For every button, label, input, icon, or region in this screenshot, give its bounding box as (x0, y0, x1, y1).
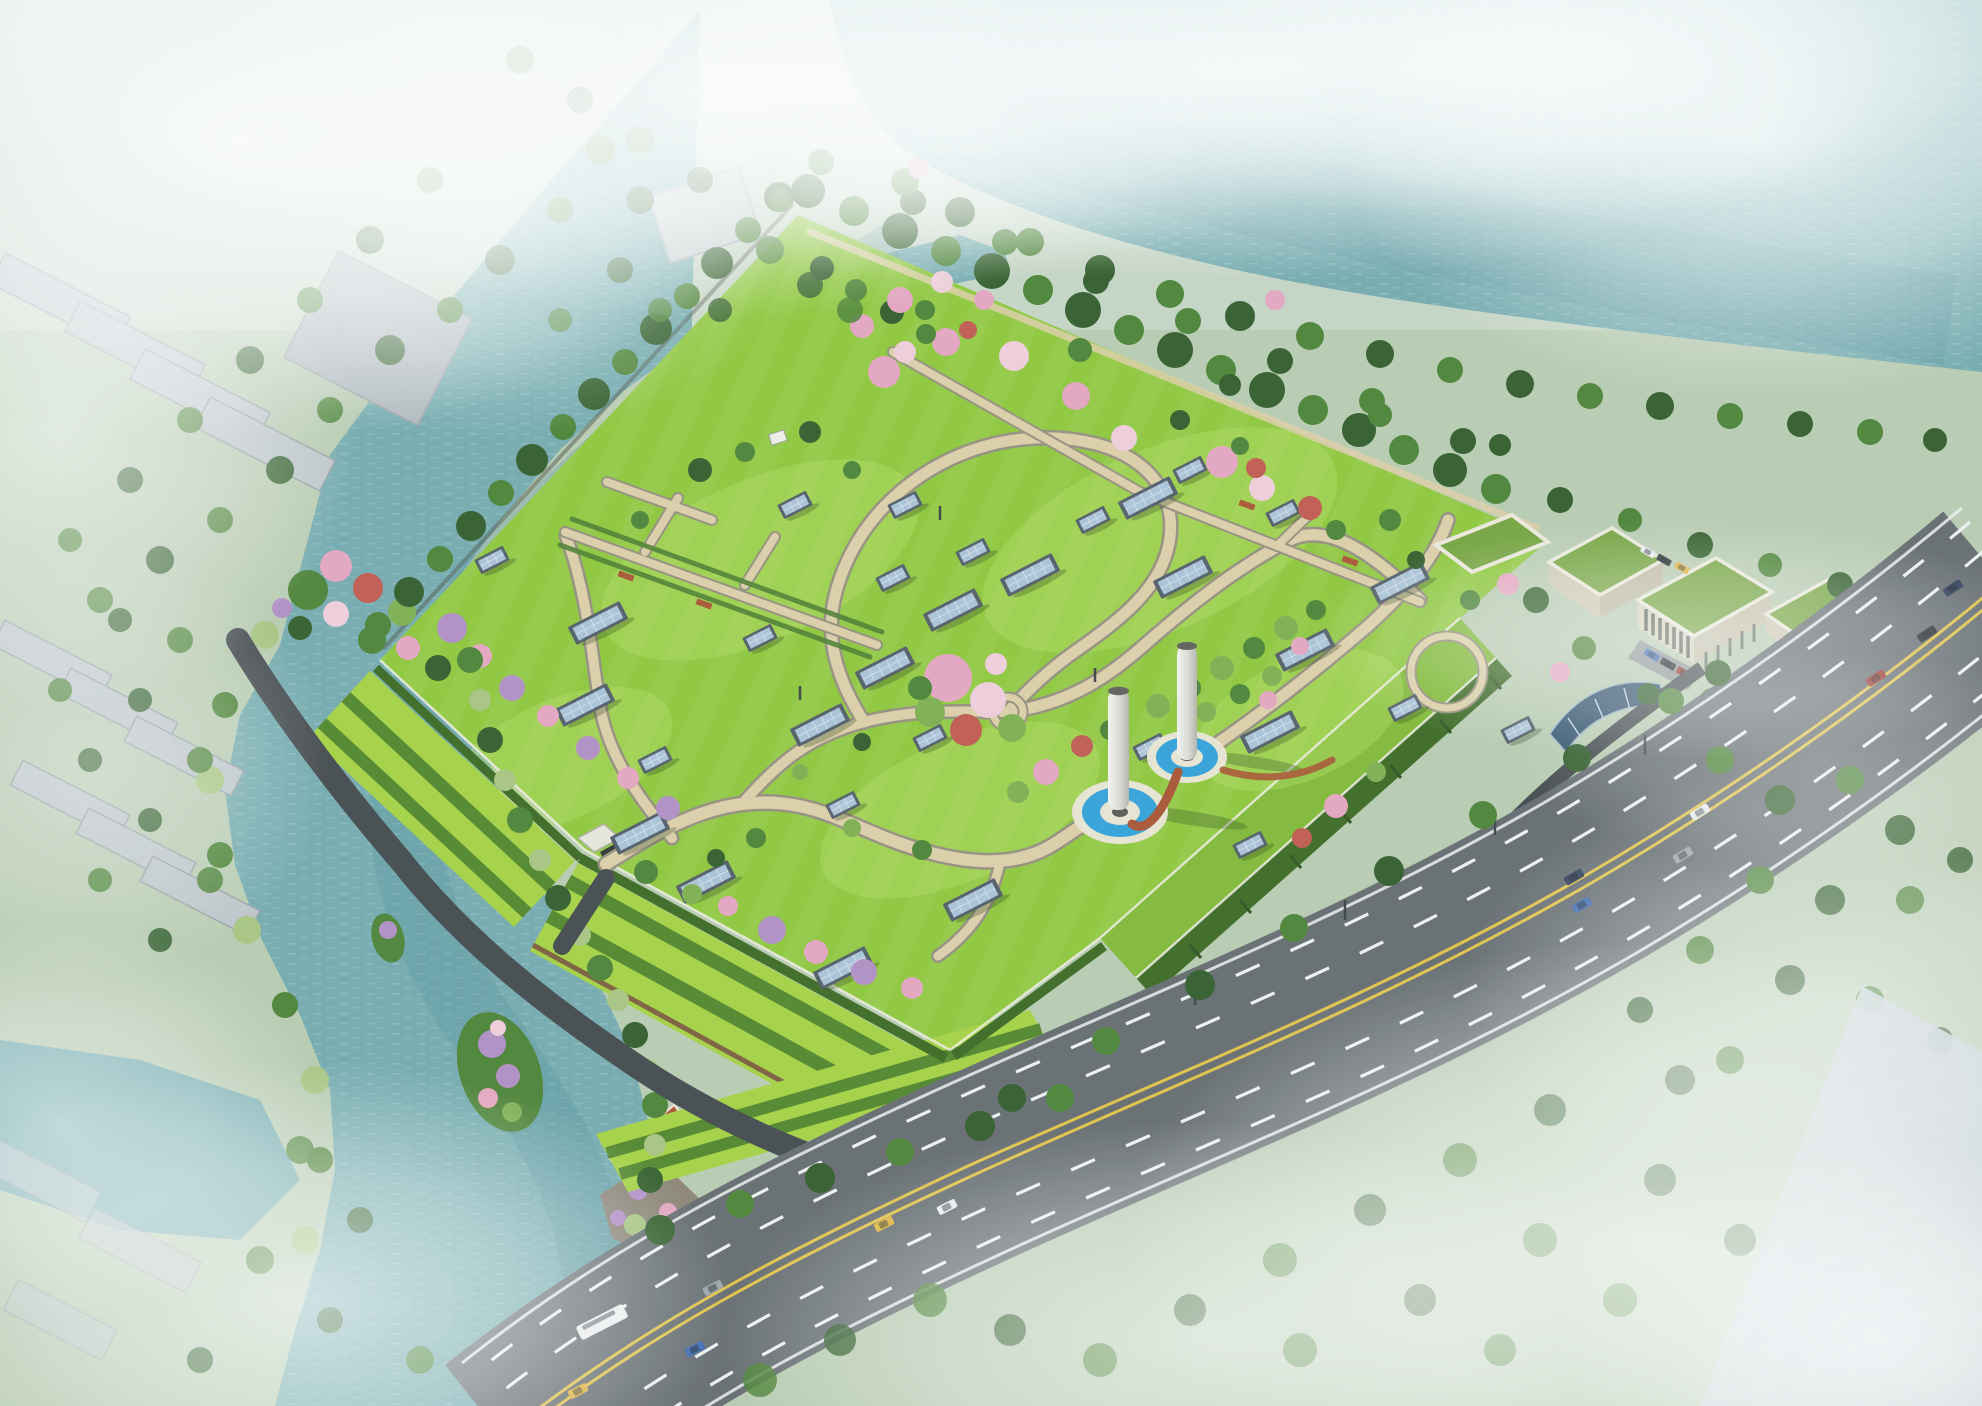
rendering-canvas (0, 0, 1982, 1406)
aerial-rendering (0, 0, 1982, 1406)
fog-layer (0, 0, 1982, 1406)
